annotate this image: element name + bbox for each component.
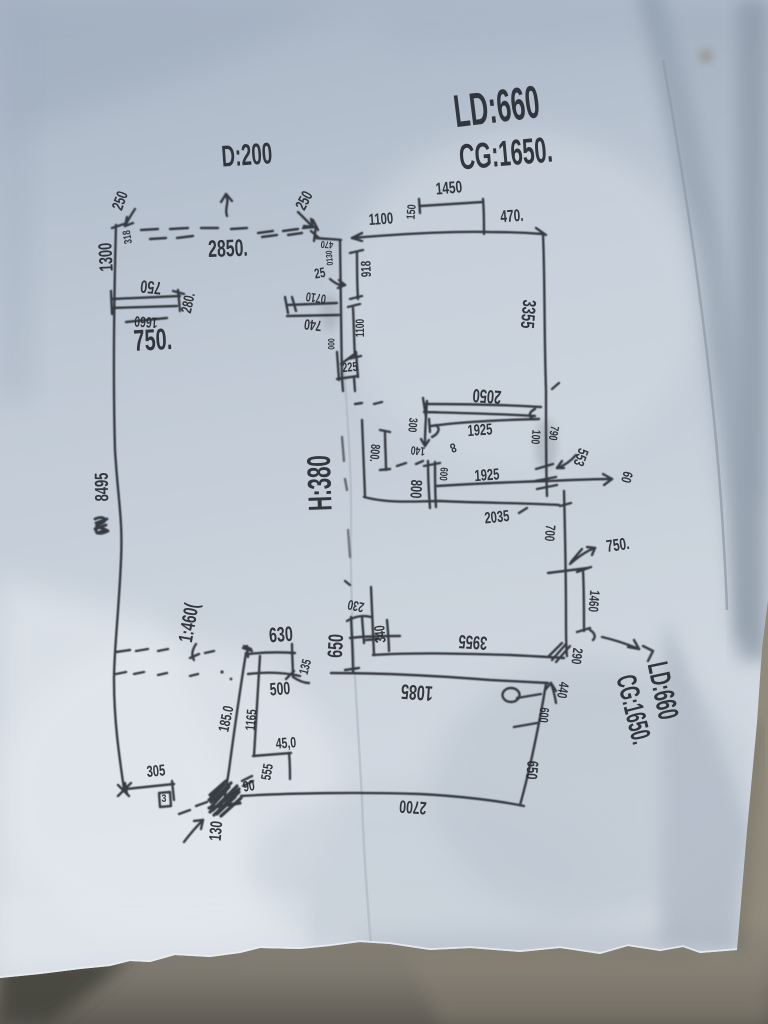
svg-text:600: 600 bbox=[436, 467, 450, 481]
svg-text:700: 700 bbox=[541, 524, 559, 542]
svg-text:740: 740 bbox=[303, 316, 322, 335]
svg-text:1100: 1100 bbox=[368, 208, 394, 228]
svg-text:2700: 2700 bbox=[399, 796, 428, 818]
svg-text:500: 500 bbox=[269, 679, 291, 700]
svg-text:630: 630 bbox=[268, 622, 293, 647]
svg-text:470: 470 bbox=[320, 239, 334, 251]
svg-text:750.: 750. bbox=[133, 323, 173, 358]
svg-text:1300: 1300 bbox=[95, 242, 118, 272]
svg-text:225: 225 bbox=[342, 360, 358, 375]
svg-text:440: 440 bbox=[553, 681, 572, 700]
svg-text:918: 918 bbox=[358, 260, 375, 277]
svg-text:305: 305 bbox=[146, 760, 166, 780]
svg-text:150: 150 bbox=[404, 204, 419, 220]
svg-text:300: 300 bbox=[405, 417, 419, 433]
svg-text:130: 130 bbox=[207, 820, 227, 841]
svg-text:470.: 470. bbox=[500, 207, 524, 227]
svg-text:LD:660: LD:660 bbox=[451, 75, 543, 137]
svg-text:790: 790 bbox=[545, 425, 560, 442]
svg-text:45,0: 45,0 bbox=[275, 733, 297, 752]
svg-text:600: 600 bbox=[535, 707, 550, 723]
svg-text:90: 90 bbox=[242, 776, 256, 795]
svg-text:H:380: H:380 bbox=[300, 455, 339, 512]
svg-text:750: 750 bbox=[139, 276, 162, 298]
svg-text:0130: 0130 bbox=[324, 250, 335, 266]
svg-text:000: 000 bbox=[326, 338, 336, 350]
svg-text:1100: 1100 bbox=[355, 319, 368, 337]
svg-text:0710: 0710 bbox=[305, 289, 327, 306]
svg-text:1460: 1460 bbox=[585, 590, 603, 613]
svg-text:800: 800 bbox=[407, 479, 427, 499]
svg-text:650: 650 bbox=[522, 760, 542, 780]
svg-text:1085: 1085 bbox=[400, 680, 433, 706]
svg-text:2850.: 2850. bbox=[208, 236, 249, 263]
svg-text:100: 100 bbox=[528, 429, 542, 445]
svg-text:1925: 1925 bbox=[467, 419, 493, 439]
svg-text:318: 318 bbox=[121, 229, 136, 245]
svg-text:CG:1650.: CG:1650. bbox=[457, 130, 554, 178]
svg-text:800.: 800. bbox=[366, 444, 381, 463]
svg-text:340: 340 bbox=[370, 625, 389, 644]
svg-text:3355: 3355 bbox=[516, 299, 539, 329]
svg-text:650: 650 bbox=[323, 633, 348, 658]
svg-text:555: 555 bbox=[258, 762, 277, 781]
svg-text:290: 290 bbox=[568, 647, 586, 665]
svg-text:1450: 1450 bbox=[435, 178, 463, 199]
svg-text:3955: 3955 bbox=[458, 630, 488, 653]
svg-text:1165: 1165 bbox=[242, 708, 260, 731]
svg-text:140: 140 bbox=[410, 443, 426, 457]
svg-text:8495: 8495 bbox=[91, 472, 113, 501]
svg-text:1925: 1925 bbox=[474, 464, 500, 484]
svg-text:2035: 2035 bbox=[483, 506, 510, 527]
svg-text:750.: 750. bbox=[605, 535, 630, 557]
svg-text:D:200: D:200 bbox=[220, 137, 273, 174]
svg-text:2050: 2050 bbox=[472, 384, 502, 407]
svg-text:3: 3 bbox=[162, 793, 167, 805]
